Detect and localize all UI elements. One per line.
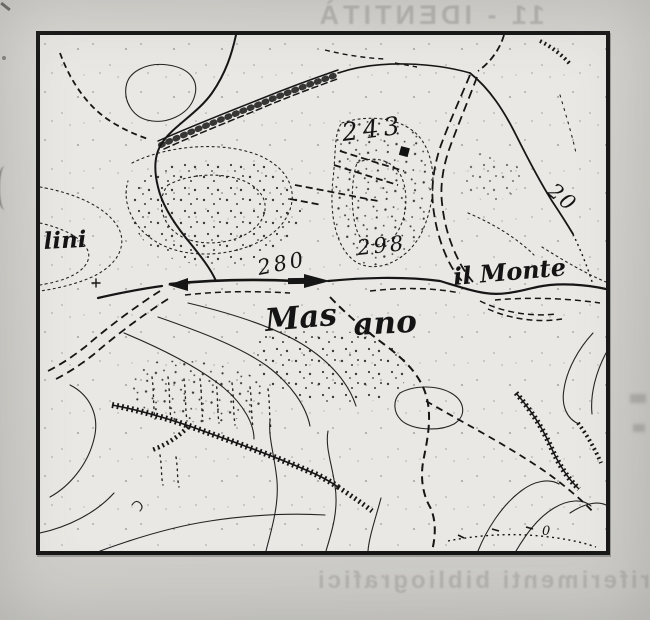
- scan-artifact-dot: [2, 56, 6, 60]
- place-label-masano-2: ano: [353, 304, 418, 343]
- map-canvas: 243 298 280 20 0 Mas ano il Monte lini: [40, 35, 606, 551]
- spot-height-0: 0: [542, 524, 550, 539]
- scan-artifact-left-edge: [0, 166, 13, 210]
- bleed-through-text-bottom: riferimenti bibliografici: [266, 567, 650, 595]
- map-frame: 243 298 280 20 0 Mas ano il Monte lini: [36, 31, 610, 555]
- bleed-smudge-right-1: [630, 394, 646, 403]
- bleed-smudge-right-2: [633, 424, 645, 432]
- scanned-page: 11 - IDENTITÀ: [0, 0, 650, 620]
- scan-artifact-corner: [0, 2, 11, 11]
- bleed-through-text-top: 11 - IDENTITÀ: [298, 0, 562, 31]
- place-label-lini: lini: [43, 226, 87, 255]
- place-label-masano-1: Mas: [263, 297, 339, 339]
